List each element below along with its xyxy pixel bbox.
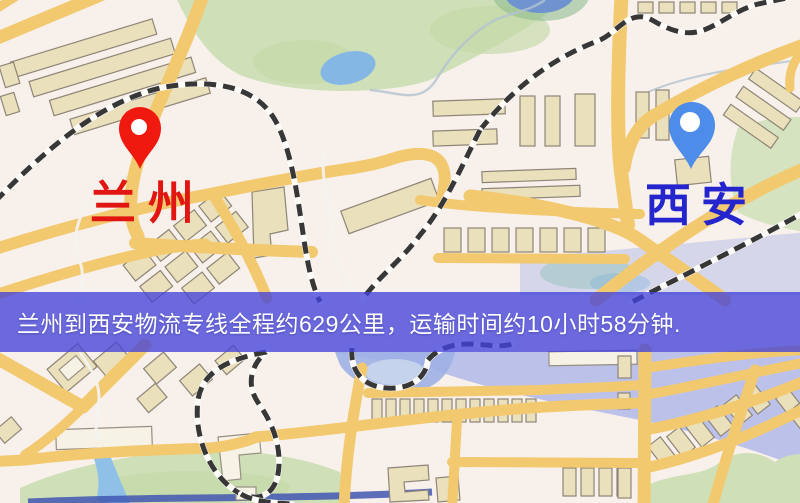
route-info-text: 兰州到西安物流专线全程约629公里，运输时间约10小时58分钟. <box>0 305 681 339</box>
xian-city-label: 西安 <box>645 182 757 228</box>
route-info-banner: 兰州到西安物流专线全程约629公里，运输时间约10小时58分钟. <box>0 292 800 352</box>
map-image <box>0 0 800 503</box>
map-view: 兰州 西安 兰州到西安物流专线全程约629公里，运输时间约10小时58分钟. <box>0 0 800 503</box>
lanzhou-city-label: 兰州 <box>90 180 206 226</box>
